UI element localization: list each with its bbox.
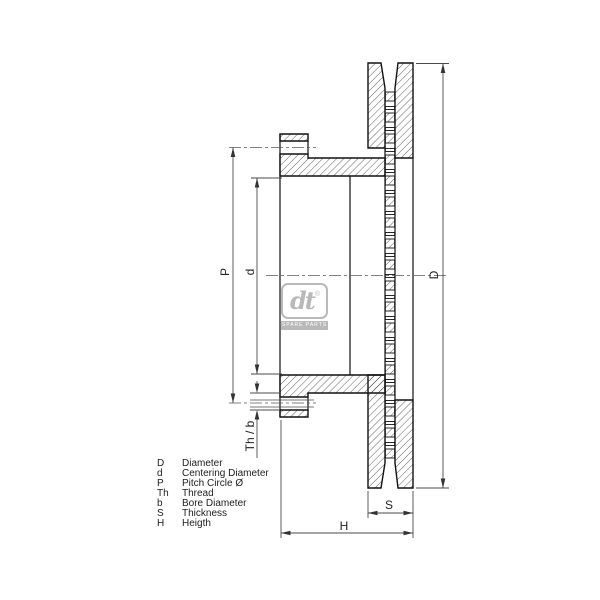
vane-section xyxy=(385,386,394,395)
legend-label: Heigth xyxy=(182,519,211,529)
vane-section xyxy=(385,239,394,248)
legend-row-thickness: S Thickness xyxy=(157,509,269,519)
vane-section xyxy=(385,365,394,374)
vane-edge xyxy=(385,254,394,257)
legend: D Diameter d Centering Diameter P Pitch … xyxy=(157,459,269,529)
vane-edge xyxy=(385,107,394,110)
vane-section xyxy=(385,449,394,458)
arrow-d-top xyxy=(255,178,260,188)
vane-edge xyxy=(385,380,394,383)
bolt-boss-bottom xyxy=(280,410,308,417)
label-thickness: S xyxy=(385,498,393,512)
legend-symbol: H xyxy=(157,519,182,529)
label-height: H xyxy=(340,519,349,533)
vane-section xyxy=(385,134,394,143)
vane-section xyxy=(385,428,394,437)
legend-row-height: H Heigth xyxy=(157,519,269,529)
label-centering-diameter: d xyxy=(243,269,257,276)
label-diameter: D xyxy=(427,271,441,280)
technical-drawing-canvas: dt® Spare Parts xyxy=(0,0,600,600)
vane-edge xyxy=(385,128,394,131)
vane-edge xyxy=(385,212,394,215)
disc-bottom-right-ring xyxy=(395,400,413,488)
vane-section xyxy=(385,260,394,269)
disc-top-right-ring xyxy=(395,63,413,158)
arrow-thb-up xyxy=(255,410,260,420)
vane-section xyxy=(385,323,394,332)
vane-edge xyxy=(385,338,394,341)
vane-edge xyxy=(385,296,394,299)
vane-section xyxy=(385,113,394,122)
vane-edge xyxy=(385,275,394,278)
arrow-thb-down xyxy=(255,384,260,394)
arrow-D-top xyxy=(441,64,446,74)
arrow-S-left xyxy=(368,511,378,516)
vane-section xyxy=(385,155,394,164)
bolt-boss-top xyxy=(280,134,308,141)
vane-edge xyxy=(385,359,394,362)
arrow-H-right xyxy=(404,531,414,536)
centerlines xyxy=(229,148,447,404)
label-pitch-circle: P xyxy=(218,268,232,276)
vane-section xyxy=(385,218,394,227)
vane-edge xyxy=(385,317,394,320)
vane-edge xyxy=(385,170,394,173)
vane-edge xyxy=(385,191,394,194)
label-thread-bore: Th / b xyxy=(243,421,257,452)
vane-section xyxy=(385,407,394,416)
disc-top-left-ring xyxy=(368,63,385,148)
arrow-P-bottom xyxy=(231,394,236,404)
arrow-P-top xyxy=(231,148,236,158)
brake-disc-section-drawing xyxy=(0,0,600,600)
arrow-D-bottom xyxy=(441,479,446,489)
ventilation-vanes xyxy=(385,92,394,458)
arrow-S-right xyxy=(404,511,414,516)
vane-section xyxy=(385,302,394,311)
arrow-d-bottom xyxy=(255,365,260,375)
hat-flange-top xyxy=(280,154,385,176)
vane-edge xyxy=(385,422,394,425)
vane-section xyxy=(385,176,394,185)
vane-section xyxy=(385,281,394,290)
vane-section xyxy=(385,92,394,101)
vane-edge xyxy=(385,443,394,446)
vane-section xyxy=(385,344,394,353)
vane-edge xyxy=(385,401,394,404)
vane-edge xyxy=(385,149,394,152)
disc-bottom-left-ring xyxy=(368,375,385,488)
vane-section xyxy=(385,197,394,206)
arrow-H-left xyxy=(281,531,291,536)
vane-edge xyxy=(385,233,394,236)
